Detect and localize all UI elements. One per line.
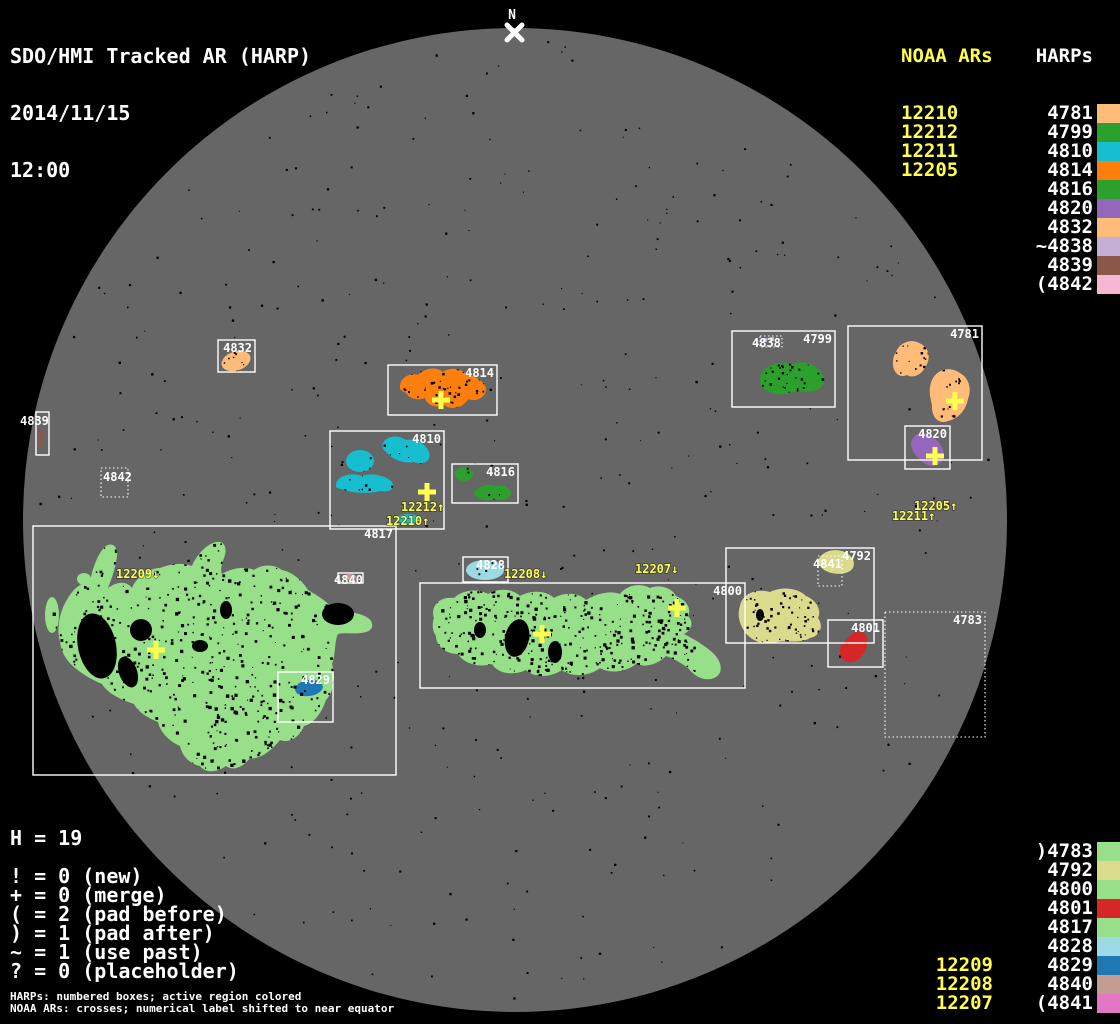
- speckle: [318, 209, 320, 211]
- speckle: [337, 427, 339, 429]
- speckle: [655, 377, 656, 378]
- speckle: [361, 792, 362, 793]
- speckle: [643, 298, 645, 300]
- speckle: [648, 763, 650, 765]
- speckle: [919, 529, 921, 531]
- speckle: [736, 463, 737, 464]
- noaa-number: 12205: [901, 161, 993, 180]
- speckle: [253, 493, 255, 495]
- speckle: [326, 112, 328, 114]
- speckle: [351, 747, 353, 749]
- speckle: [526, 891, 528, 893]
- speckle: [877, 494, 878, 495]
- speckle: [906, 657, 907, 658]
- speckle: [695, 584, 696, 585]
- speckle: [694, 870, 696, 872]
- speckle: [762, 805, 764, 807]
- speckle: [661, 962, 662, 963]
- speckle: [321, 299, 323, 301]
- speckle: [364, 362, 366, 364]
- speckle: [756, 250, 758, 252]
- speckle: [201, 218, 203, 220]
- speckle: [527, 698, 529, 700]
- speckle: [347, 814, 349, 816]
- speckle: [92, 716, 94, 718]
- speckle: [234, 337, 235, 338]
- speckle: [357, 126, 359, 128]
- speckle: [887, 270, 889, 272]
- speckle: [74, 448, 76, 450]
- speckle: [375, 671, 377, 673]
- speckle: [351, 166, 353, 168]
- harp-box-label: 4814: [465, 366, 494, 380]
- harp-color-swatch: [1097, 956, 1120, 975]
- speckle: [312, 209, 314, 211]
- harp-number: (4842: [1000, 275, 1093, 294]
- speckle: [611, 872, 613, 874]
- speckle: [605, 797, 607, 799]
- umbra-patch: [192, 640, 208, 652]
- speckle: [469, 178, 471, 180]
- speckle: [316, 240, 317, 241]
- harp-color-swatch: [1097, 937, 1120, 956]
- speckle: [580, 130, 582, 132]
- speckle: [938, 695, 940, 697]
- speckle: [269, 492, 271, 494]
- speckle: [500, 757, 502, 759]
- speckle: [560, 568, 562, 570]
- speckle: [246, 502, 248, 504]
- speckle: [335, 359, 337, 361]
- north-label: N: [508, 8, 516, 23]
- speckle: [650, 708, 651, 709]
- harp-number: (4841: [1000, 994, 1093, 1013]
- speckle: [934, 297, 936, 299]
- speckle: [264, 842, 266, 844]
- speckle: [887, 744, 889, 746]
- speckle: [515, 850, 517, 852]
- speckle: [224, 772, 226, 774]
- speckle: [486, 525, 488, 527]
- speckle: [864, 511, 865, 512]
- speckle: [666, 209, 667, 210]
- harp-box-label: 4783: [953, 613, 982, 627]
- noaa-shifted-label: 12210↑: [386, 514, 429, 528]
- speckle: [674, 536, 676, 538]
- speckle: [514, 909, 515, 910]
- speckle: [571, 60, 573, 62]
- speckle: [73, 336, 75, 338]
- speckle: [649, 167, 650, 168]
- speckle: [357, 210, 359, 212]
- speckle: [104, 293, 105, 294]
- harp-list-top: HARPs 4781479948104814481648204832~48384…: [1000, 9, 1120, 294]
- speckle: [719, 738, 721, 740]
- speckle: [421, 832, 422, 833]
- speckle: [582, 677, 584, 679]
- speckle: [648, 816, 650, 818]
- speckle: [331, 94, 333, 96]
- speckle: [771, 204, 773, 206]
- speckle: [486, 420, 488, 422]
- speckle: [468, 230, 469, 231]
- speckle: [987, 459, 989, 461]
- speckle: [254, 914, 256, 916]
- speckle: [845, 687, 847, 689]
- harp-color-swatch: [1097, 994, 1120, 1013]
- speckle: [772, 514, 774, 516]
- speckle: [580, 957, 582, 959]
- speckle: [552, 810, 554, 812]
- speckle: [807, 463, 809, 465]
- speckle: [185, 541, 187, 543]
- umbra-patch: [130, 619, 152, 641]
- speckle: [436, 54, 438, 56]
- speckle: [498, 65, 499, 66]
- speckle: [660, 222, 661, 223]
- speckle: [779, 705, 781, 707]
- harp-box-label: 4820: [918, 427, 947, 441]
- speckle: [647, 220, 648, 221]
- speckle: [308, 834, 310, 836]
- speckle: [867, 280, 868, 281]
- harp-color-swatch: [1097, 142, 1120, 161]
- speckle: [583, 978, 584, 979]
- noaa-shifted-label: 12207↓: [635, 562, 678, 576]
- harp-box-label: 4840: [334, 573, 363, 587]
- speckle: [666, 213, 667, 214]
- noaa-header: NOAA ARs: [901, 47, 993, 66]
- speckle: [173, 418, 175, 420]
- speckle: [583, 691, 585, 693]
- speckle: [351, 920, 353, 922]
- speckle: [898, 262, 899, 263]
- harp-count: H = 19: [10, 829, 82, 848]
- speckle: [627, 299, 629, 301]
- speckle: [136, 337, 138, 339]
- speckle: [412, 138, 414, 140]
- speckle: [109, 710, 111, 712]
- speckle: [313, 387, 315, 389]
- speckle: [425, 315, 427, 317]
- speckle: [490, 389, 492, 391]
- speckle: [628, 482, 630, 484]
- speckle: [644, 837, 646, 839]
- speckle: [619, 474, 621, 476]
- speckle: [433, 923, 435, 925]
- harp-color-swatch: [1097, 842, 1120, 861]
- speckle: [98, 440, 99, 441]
- speckle: [526, 504, 528, 506]
- noaa-number: 12207: [900, 994, 993, 1013]
- harp-color-swatch: [1097, 899, 1120, 918]
- speckle: [688, 456, 689, 457]
- speckle: [144, 331, 145, 332]
- speckle: [445, 233, 447, 235]
- speckle: [811, 665, 813, 667]
- speckle: [156, 412, 158, 414]
- speckle: [351, 852, 353, 854]
- speckle: [909, 408, 911, 410]
- harp-box-label: 4839: [20, 414, 49, 428]
- speckle: [625, 353, 627, 355]
- speckle: [810, 408, 811, 409]
- speckle: [909, 763, 911, 765]
- speckle: [130, 754, 132, 756]
- speckle: [465, 210, 466, 211]
- speckle: [274, 514, 275, 515]
- speckle: [474, 776, 476, 778]
- speckle: [479, 809, 480, 810]
- harp-color-swatch: [1097, 123, 1120, 142]
- speckle: [383, 207, 385, 209]
- speckle: [399, 871, 401, 873]
- speckle: [331, 446, 332, 447]
- speckle: [331, 779, 333, 781]
- speckle: [563, 506, 565, 508]
- speckle: [240, 418, 241, 419]
- speckle: [729, 260, 731, 262]
- harp-color-swatch: [1097, 918, 1120, 937]
- speckle: [505, 307, 507, 309]
- speckle: [848, 613, 849, 614]
- speckle: [164, 380, 166, 382]
- harp-color-swatch: [1097, 237, 1120, 256]
- speckle: [317, 395, 319, 397]
- harp-list-row: (4842: [1000, 275, 1120, 294]
- speckle: [951, 462, 952, 463]
- speckle: [697, 220, 699, 222]
- speckle: [217, 793, 219, 795]
- speckle: [729, 444, 730, 445]
- speckle: [149, 785, 151, 787]
- speckle: [232, 319, 234, 321]
- speckle: [179, 292, 181, 294]
- noaa-shifted-label: 12212↑: [401, 500, 444, 514]
- speckle: [295, 819, 297, 821]
- speckle: [744, 148, 746, 150]
- speckle: [291, 814, 293, 816]
- speckle: [119, 362, 121, 364]
- speckle: [500, 377, 502, 379]
- speckle: [970, 497, 972, 499]
- speckle: [573, 555, 575, 557]
- speckle: [739, 219, 741, 221]
- speckle: [212, 432, 213, 433]
- speckle: [129, 284, 131, 286]
- speckle: [448, 334, 449, 335]
- speckle: [837, 419, 838, 420]
- speckle: [132, 772, 134, 774]
- speckle: [282, 549, 283, 550]
- speckle: [449, 676, 450, 677]
- speckle: [836, 726, 838, 728]
- speckle: [160, 449, 161, 450]
- speckle: [228, 435, 230, 437]
- speckle: [500, 183, 501, 184]
- speckle: [298, 559, 300, 561]
- speckle: [248, 249, 250, 251]
- speckle: [476, 689, 478, 691]
- speckle: [139, 557, 141, 559]
- speckle: [589, 849, 591, 851]
- speckle: [486, 73, 488, 75]
- speckle: [658, 792, 659, 793]
- speckle: [408, 336, 410, 338]
- speckle: [671, 467, 672, 468]
- speckle: [127, 307, 129, 309]
- speckle: [594, 791, 596, 793]
- speckle: [429, 204, 430, 205]
- speckle: [305, 435, 307, 437]
- speckle: [370, 908, 371, 909]
- speckle: [614, 864, 616, 866]
- speckle: [791, 691, 793, 693]
- speckle: [652, 549, 653, 550]
- speckle: [591, 593, 593, 595]
- speckle: [715, 410, 717, 412]
- speckle: [261, 305, 263, 307]
- harp-box-label: 4799: [803, 332, 832, 346]
- speckle: [425, 118, 426, 119]
- speckle: [605, 438, 607, 440]
- speckle: [825, 510, 827, 512]
- noaa-shifted-label: 12208↓: [504, 567, 547, 581]
- harp-color-swatch: [1097, 861, 1120, 880]
- speckle: [904, 683, 905, 684]
- speckle: [605, 386, 607, 388]
- speckle: [713, 194, 715, 196]
- speckle: [318, 512, 320, 514]
- speckle: [682, 843, 683, 844]
- speckle: [581, 715, 583, 717]
- speckle: [40, 503, 42, 505]
- speckle: [625, 129, 627, 131]
- speckle: [761, 201, 763, 203]
- speckle: [409, 727, 410, 728]
- speckle: [653, 947, 654, 948]
- speckle: [883, 770, 885, 772]
- speckle: [771, 880, 773, 882]
- speckle: [814, 722, 816, 724]
- speckle: [435, 745, 436, 746]
- speckle: [303, 922, 305, 924]
- harp-color-swatch: [1097, 975, 1120, 994]
- speckle: [728, 566, 730, 568]
- speckle: [507, 883, 509, 885]
- speckle: [349, 294, 350, 295]
- speckle: [231, 457, 232, 458]
- speckle: [639, 128, 641, 130]
- speckle: [543, 304, 544, 305]
- speckle: [752, 578, 754, 580]
- speckle: [818, 689, 819, 690]
- speckle: [740, 267, 741, 268]
- speckle: [721, 946, 723, 948]
- speckle: [447, 276, 448, 277]
- speckle: [528, 170, 529, 171]
- speckle: [719, 446, 721, 448]
- speckle: [344, 336, 346, 338]
- harps-header: HARPs: [1000, 47, 1093, 66]
- speckle: [470, 279, 472, 281]
- speckle: [415, 570, 416, 571]
- speckle: [119, 392, 121, 394]
- speckle: [327, 188, 329, 190]
- speckle: [727, 258, 729, 260]
- speckle: [58, 496, 60, 498]
- speckle: [710, 408, 711, 409]
- speckle: [712, 363, 714, 365]
- speckle: [375, 279, 377, 281]
- speckle: [143, 545, 144, 546]
- harp-color-swatch: [1097, 161, 1120, 180]
- speckle: [357, 95, 359, 97]
- harp-box-label: 4838: [752, 336, 781, 350]
- speckle: [696, 163, 698, 165]
- speckle: [354, 103, 355, 104]
- speckle: [409, 350, 411, 352]
- speckle: [274, 521, 275, 522]
- speckle: [333, 911, 335, 913]
- speckle: [892, 275, 893, 276]
- speckle: [225, 284, 227, 286]
- speckle: [629, 765, 630, 766]
- speckle: [544, 793, 545, 794]
- speckle: [363, 870, 365, 872]
- harp-color-swatch: [1097, 256, 1120, 275]
- speckle: [442, 727, 444, 729]
- speckle: [704, 495, 706, 497]
- speckle: [582, 916, 584, 918]
- speckle: [811, 515, 813, 517]
- ar-blob-4817: [77, 573, 91, 585]
- noaa-list-bottom: 122091220812207: [900, 956, 993, 1013]
- speckle: [778, 824, 780, 826]
- harp-plot-canvas: 4832483948424814481048164817484048294828…: [0, 0, 1120, 1024]
- harp-list-bottom: )47834792480048014817482848294840(4841: [1000, 842, 1120, 1013]
- harp-box-label: 4842: [103, 470, 132, 484]
- speckle: [291, 389, 292, 390]
- speckle: [532, 800, 533, 801]
- speckle: [497, 749, 499, 751]
- speckle: [527, 972, 529, 974]
- speckle: [151, 373, 153, 375]
- speckle: [563, 308, 565, 310]
- speckle: [603, 550, 605, 552]
- speckle: [655, 679, 657, 681]
- speckle: [616, 198, 618, 200]
- speckle: [658, 432, 660, 434]
- speckle: [663, 875, 664, 876]
- speckle: [360, 696, 361, 697]
- harp-box-label: 4828: [476, 558, 505, 572]
- harp-box-label: 4817: [364, 527, 393, 541]
- speckle: [765, 458, 767, 460]
- speckle: [890, 246, 892, 248]
- speckle: [676, 712, 677, 713]
- speckle: [782, 242, 784, 244]
- speckle: [822, 514, 823, 515]
- time-label: 12:00: [10, 161, 311, 180]
- speckle: [757, 432, 759, 434]
- speckle: [447, 767, 448, 768]
- speckle: [596, 301, 598, 303]
- harp-box-label: 4816: [486, 465, 515, 479]
- speckle: [599, 953, 601, 955]
- speckle: [512, 939, 514, 941]
- legend-symbol-rows: ! = 0 (new)+ = 0 (merge)( = 2 (pad befor…: [10, 867, 239, 981]
